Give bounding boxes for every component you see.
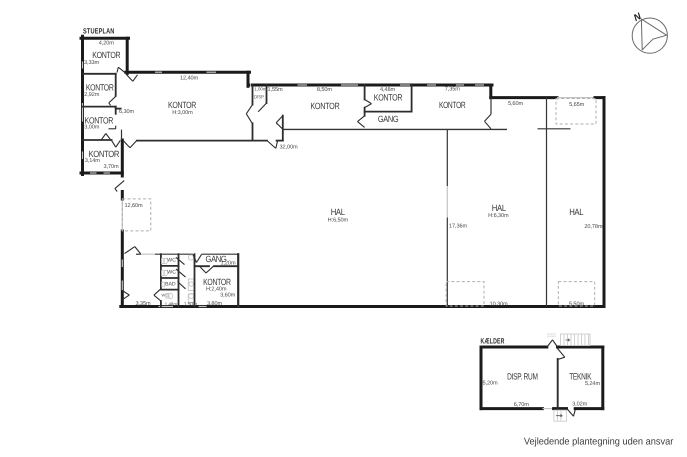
svg-text:KONTOR: KONTOR xyxy=(374,92,403,102)
svg-text:4,48m: 4,48m xyxy=(380,87,395,93)
svg-text:WC: WC xyxy=(167,258,176,264)
svg-text:3,33m: 3,33m xyxy=(84,60,99,66)
svg-text:WC: WC xyxy=(167,269,176,275)
svg-text:BAD: BAD xyxy=(165,281,176,287)
svg-text:HAL: HAL xyxy=(492,203,506,213)
svg-text:KONTOR: KONTOR xyxy=(439,100,466,110)
svg-text:GANG: GANG xyxy=(378,114,399,124)
svg-text:1,48m: 1,48m xyxy=(165,301,178,306)
svg-text:5,24m: 5,24m xyxy=(585,381,600,387)
svg-text:3,60m: 3,60m xyxy=(220,293,235,299)
svg-text:HAL: HAL xyxy=(569,207,583,217)
svg-text:KONTOR: KONTOR xyxy=(168,100,197,110)
svg-text:H:6,50m: H:6,50m xyxy=(328,217,349,223)
svg-text:TEKNIK: TEKNIK xyxy=(569,371,591,381)
svg-text:6,30m: 6,30m xyxy=(119,109,134,115)
svg-text:7,35m: 7,35m xyxy=(445,87,460,93)
svg-text:KONTOR: KONTOR xyxy=(203,277,231,287)
svg-text:STUEPLAN: STUEPLAN xyxy=(83,26,115,35)
svg-text:HAL: HAL xyxy=(331,207,345,217)
svg-text:3,80m: 3,80m xyxy=(207,301,222,307)
svg-text:8,50m: 8,50m xyxy=(317,87,332,93)
svg-text:1,55m: 1,55m xyxy=(268,87,283,93)
svg-text:DISP. RUM: DISP. RUM xyxy=(507,371,538,381)
svg-text:KONTOR: KONTOR xyxy=(310,101,340,111)
svg-text:1,00m: 1,00m xyxy=(254,87,267,92)
svg-text:3,35m: 3,35m xyxy=(135,301,150,307)
svg-text:5,60m: 5,60m xyxy=(508,101,523,107)
svg-text:3,00m: 3,00m xyxy=(84,125,99,131)
svg-text:12,60m: 12,60m xyxy=(124,203,142,209)
svg-text:3,70m: 3,70m xyxy=(104,164,119,170)
svg-text:10,30m: 10,30m xyxy=(490,301,508,307)
svg-text:3,02m: 3,02m xyxy=(572,401,587,407)
svg-text:6,70m: 6,70m xyxy=(514,402,529,408)
svg-text:20,78m: 20,78m xyxy=(584,224,602,230)
svg-text:H:3,00m: H:3,00m xyxy=(172,110,193,116)
svg-text:5,20m: 5,20m xyxy=(483,381,498,387)
svg-text:H:6,30m: H:6,30m xyxy=(488,213,509,219)
svg-text:2,92m: 2,92m xyxy=(84,92,99,98)
svg-text:1,50m: 1,50m xyxy=(184,301,197,307)
svg-text:17,36m: 17,36m xyxy=(449,224,467,230)
svg-text:12,40m: 12,40m xyxy=(180,75,198,81)
svg-text:32,00m: 32,00m xyxy=(279,144,297,150)
svg-text:DISP.: DISP. xyxy=(254,94,265,100)
svg-text:KONTOR: KONTOR xyxy=(92,50,121,60)
svg-text:KONTOR: KONTOR xyxy=(86,83,114,93)
svg-text:Vejledende plantegning uden an: Vejledende plantegning uden ansvar xyxy=(524,437,674,448)
svg-text:KÆLDER: KÆLDER xyxy=(481,336,505,345)
svg-text:4,20m: 4,20m xyxy=(99,40,114,46)
svg-text:5,65m: 5,65m xyxy=(569,102,584,108)
svg-text:5,50m: 5,50m xyxy=(569,301,584,307)
svg-text:3,14m: 3,14m xyxy=(85,158,100,164)
